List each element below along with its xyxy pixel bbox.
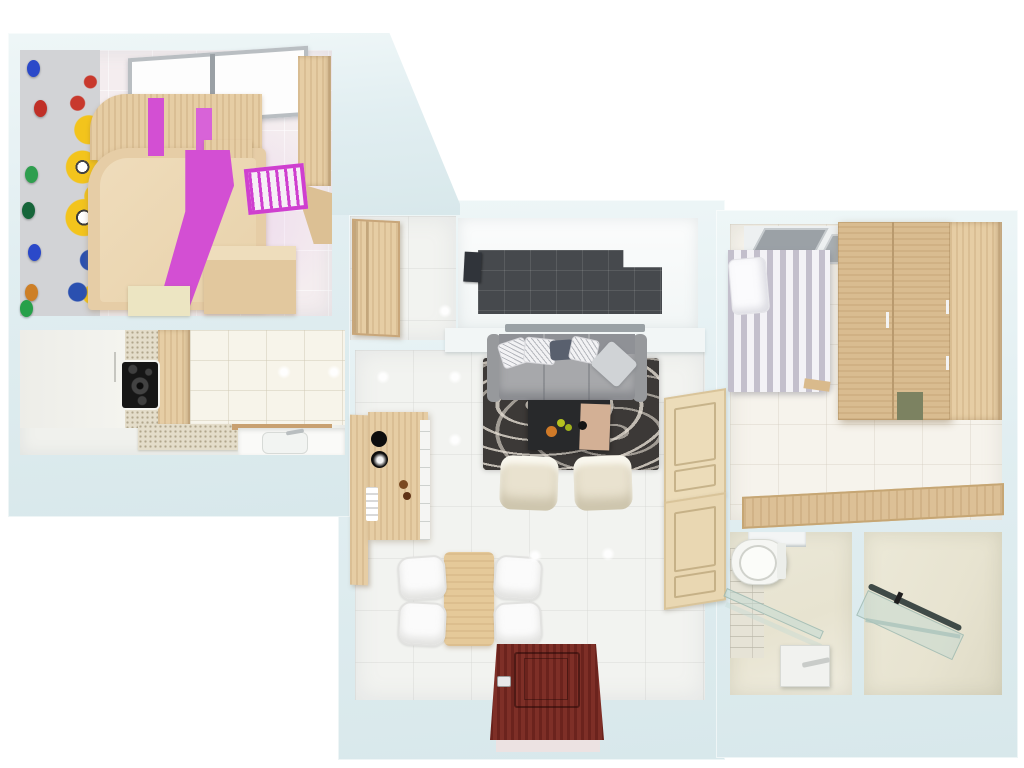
bedroom-pillow bbox=[728, 256, 771, 315]
kids-crib bbox=[244, 163, 308, 215]
kitchen-cooktop bbox=[122, 362, 158, 408]
door1-groove bbox=[674, 402, 716, 467]
balcony-window-frame bbox=[505, 324, 645, 332]
garland-bulb-green bbox=[25, 166, 38, 183]
kids-room-door-leaf bbox=[352, 219, 400, 338]
bedroom-wardrobe-side bbox=[950, 222, 1002, 420]
floor-sparkle-3 bbox=[448, 370, 462, 384]
bathroom-panel-door-2 bbox=[664, 492, 726, 610]
door1-groove-bottom bbox=[674, 464, 716, 493]
door2-groove-bottom bbox=[674, 570, 716, 599]
entry-door-handle bbox=[497, 676, 511, 687]
bedroom-wardrobe-handle1 bbox=[886, 312, 889, 328]
garland-bulb-darkgreen bbox=[22, 202, 35, 219]
bar-bottles bbox=[366, 487, 378, 521]
wc-toilet-seat bbox=[739, 545, 777, 581]
wc-toilet-tank bbox=[777, 543, 786, 579]
bar-unit-white-shelf bbox=[420, 420, 430, 540]
kitchen-left-wall bbox=[20, 330, 125, 428]
kitchen-sink bbox=[262, 432, 308, 454]
sofa-armrest-right bbox=[633, 334, 647, 402]
kitchen-light-sparkle2 bbox=[327, 365, 341, 379]
wall-diagonal-corner bbox=[310, 33, 460, 215]
bar-item-brown bbox=[399, 480, 408, 489]
floor-sparkle-2 bbox=[376, 370, 390, 384]
garland-bulb-blue2 bbox=[28, 244, 41, 261]
kids-cabinet-magenta-door bbox=[148, 98, 164, 156]
bedroom-wardrobe-niche bbox=[897, 392, 923, 420]
bedroom-wardrobe-handle3 bbox=[946, 356, 949, 370]
kids-play-table bbox=[128, 286, 190, 316]
garland-bulb-red bbox=[34, 100, 47, 117]
armchair-left bbox=[499, 455, 559, 511]
table-item-lime bbox=[557, 419, 565, 427]
floor-sparkle-6 bbox=[528, 549, 542, 563]
dining-chair-2 bbox=[397, 601, 447, 647]
kitchen-tile-wall bbox=[190, 330, 345, 425]
bar-item-brown2 bbox=[403, 492, 411, 500]
kids-dresser bbox=[204, 246, 296, 314]
garland-bulb-blue bbox=[27, 60, 40, 77]
door2-groove bbox=[674, 506, 716, 573]
table-item-orange bbox=[546, 426, 557, 437]
garland-bulb-orange bbox=[25, 284, 38, 301]
kitchen-light-sparkle bbox=[277, 365, 291, 379]
bedroom-wardrobe-divider1 bbox=[892, 222, 894, 420]
dining-chair-1 bbox=[397, 554, 448, 601]
table-item-cup bbox=[578, 421, 587, 430]
dining-table bbox=[444, 552, 494, 646]
armchair-right bbox=[573, 455, 633, 511]
kitchen-fridge-handle bbox=[114, 352, 116, 382]
floor-sparkle-7 bbox=[601, 547, 615, 561]
floorplan-scene bbox=[0, 0, 1024, 768]
kitchen-counter bbox=[138, 424, 238, 450]
bedroom-wardrobe-handle2 bbox=[946, 300, 949, 314]
bathroom-panel-door-1 bbox=[664, 388, 726, 504]
floor-sparkle-1 bbox=[438, 304, 452, 318]
table-item-lime2 bbox=[565, 424, 572, 431]
dining-chair-4 bbox=[493, 601, 543, 647]
bedroom-wardrobe-front bbox=[838, 222, 950, 420]
floor-sparkle-4 bbox=[373, 453, 387, 467]
entry-door-panel-groove2 bbox=[524, 658, 568, 700]
balcony-ac-unit bbox=[463, 252, 482, 283]
kitchen-tall-cabinet bbox=[158, 330, 190, 430]
floor-sparkle-5 bbox=[448, 433, 462, 447]
bar-bowl-black1 bbox=[371, 431, 387, 447]
garland-bulb-green2 bbox=[20, 300, 33, 317]
